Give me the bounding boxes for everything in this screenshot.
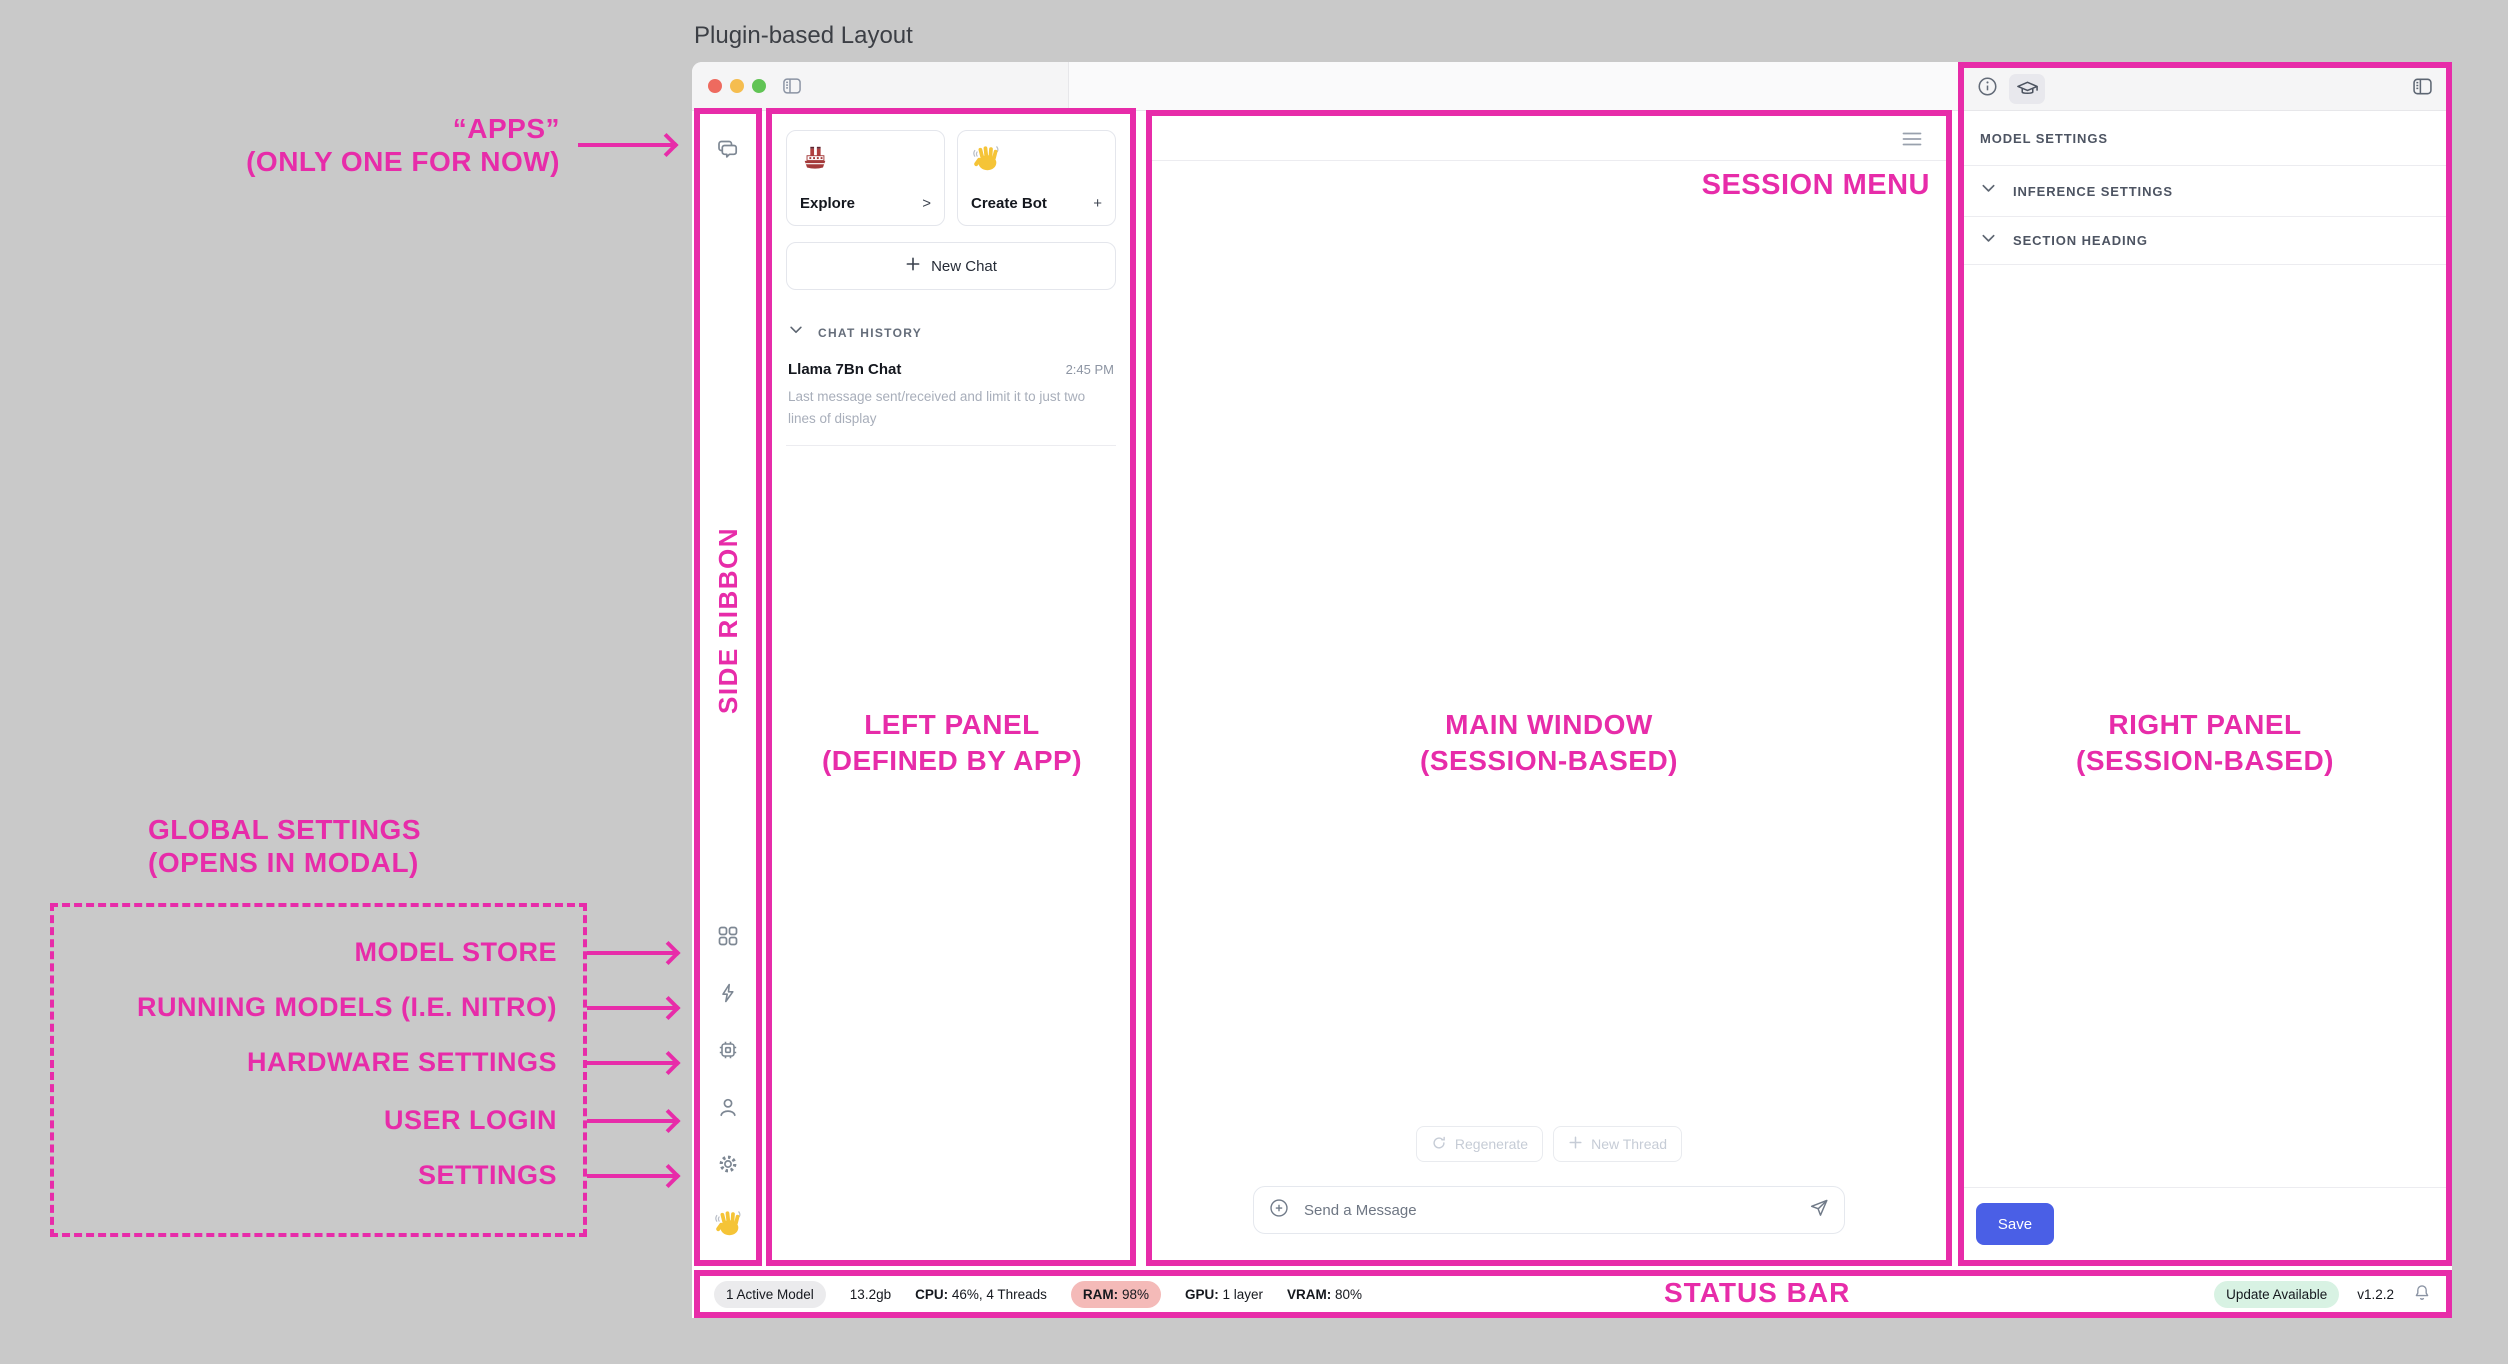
chip-icon[interactable] xyxy=(716,1038,740,1067)
message-composer[interactable] xyxy=(1253,1186,1845,1234)
memory-size: 13.2gb xyxy=(850,1287,891,1302)
gear-icon[interactable] xyxy=(716,1152,740,1181)
ship-emoji xyxy=(800,144,931,179)
annotation-arrow-settings xyxy=(587,1174,675,1178)
annotation-running-models: RUNNING MODELS (I.E. NITRO) xyxy=(60,992,557,1023)
annotation-right-panel: RIGHT PANEL (SESSION-BASED) xyxy=(1958,707,2452,779)
right-panel: MODEL SETTINGS INFERENCE SETTINGS SECTIO… xyxy=(1958,62,2452,1266)
annotation-apps: “APPS” (ONLY ONE FOR NOW) xyxy=(150,112,560,178)
chat-history-item[interactable]: Llama 7Bn Chat 2:45 PM Last message sent… xyxy=(786,361,1116,446)
design-canvas: Plugin-based Layout xyxy=(0,0,2508,1364)
annotation-arrow-apps xyxy=(578,143,673,147)
chat-time: 2:45 PM xyxy=(1066,362,1114,377)
gpu-stat: GPU: 1 layer xyxy=(1185,1287,1263,1302)
regenerate-button[interactable]: Regenerate xyxy=(1416,1126,1543,1162)
send-icon[interactable] xyxy=(1808,1197,1830,1224)
annotation-arrow-model-store xyxy=(587,951,675,955)
page-title: Plugin-based Layout xyxy=(694,22,913,50)
graduation-cap-icon[interactable] xyxy=(2009,74,2045,104)
wave-hand-emoji[interactable] xyxy=(713,1209,743,1244)
plus-icon xyxy=(1568,1135,1583,1153)
right-panel-header xyxy=(1964,68,2446,111)
plus-icon xyxy=(905,256,921,276)
section-heading-section[interactable]: SECTION HEADING xyxy=(1964,217,2446,265)
panel-toggle-icon[interactable] xyxy=(2411,75,2434,103)
chat-title: Llama 7Bn Chat xyxy=(788,361,901,378)
chat-history-label: CHAT HISTORY xyxy=(818,326,922,340)
new-thread-button[interactable]: New Thread xyxy=(1553,1126,1682,1162)
chat-history-header[interactable]: CHAT HISTORY xyxy=(786,322,1116,343)
annotation-arrow-running-models xyxy=(587,1006,675,1010)
status-bar: 1 Active Model 13.2gb CPU: 46%, 4 Thread… xyxy=(694,1270,2452,1318)
model-settings-heading: MODEL SETTINGS xyxy=(1964,111,2446,166)
new-chat-label: New Chat xyxy=(931,258,997,275)
zoom-button[interactable] xyxy=(752,79,766,93)
left-panel: Explore > xyxy=(766,108,1136,1266)
explore-card-chevron: > xyxy=(922,195,931,212)
ram-stat: RAM: 98% xyxy=(1071,1281,1161,1308)
bolt-icon[interactable] xyxy=(716,981,740,1010)
annotation-user-login: USER LOGIN xyxy=(60,1105,557,1136)
annotation-arrow-hardware-settings xyxy=(587,1061,675,1065)
main-window: Regenerate New Thread xyxy=(1146,110,1952,1266)
info-icon[interactable] xyxy=(1976,75,1999,103)
vram-stat: VRAM: 80% xyxy=(1287,1287,1362,1302)
app-version: v1.2.2 xyxy=(2357,1287,2394,1302)
explore-card[interactable]: Explore > xyxy=(786,130,945,226)
create-bot-card-label: Create Bot xyxy=(971,195,1047,212)
grid-apps-icon[interactable] xyxy=(716,924,740,953)
chevron-down-icon xyxy=(1980,230,1997,252)
update-available-badge[interactable]: Update Available xyxy=(2214,1281,2339,1308)
section-heading-label: SECTION HEADING xyxy=(2013,233,2148,248)
explore-card-label: Explore xyxy=(800,195,855,212)
refresh-icon xyxy=(1431,1135,1447,1154)
chat-bubbles-icon[interactable] xyxy=(715,136,741,167)
circle-plus-icon[interactable] xyxy=(1268,1197,1290,1224)
wave-hand-emoji xyxy=(971,144,1102,179)
regenerate-label: Regenerate xyxy=(1455,1136,1528,1152)
chevron-down-icon xyxy=(1980,180,1997,202)
model-settings-label: MODEL SETTINGS xyxy=(1980,131,2108,146)
user-icon[interactable] xyxy=(716,1095,740,1124)
create-bot-card-plus: + xyxy=(1093,195,1102,212)
annotation-side-ribbon: SIDE RIBBON xyxy=(694,515,762,725)
annotation-hardware-settings: HARDWARE SETTINGS xyxy=(60,1047,557,1078)
main-window-header xyxy=(1152,116,1946,161)
minimize-button[interactable] xyxy=(730,79,744,93)
annotation-global-settings: GLOBAL SETTINGS (OPENS IN MODAL) xyxy=(148,813,421,879)
annotation-settings: SETTINGS xyxy=(60,1160,557,1191)
bell-icon[interactable] xyxy=(2412,1283,2432,1306)
chevron-down-icon xyxy=(788,322,804,343)
create-bot-card[interactable]: Create Bot + xyxy=(957,130,1116,226)
save-button[interactable]: Save xyxy=(1976,1203,2054,1245)
annotation-session-menu: SESSION MENU xyxy=(1620,169,1930,202)
active-model-badge: 1 Active Model xyxy=(714,1281,826,1308)
inference-settings-label: INFERENCE SETTINGS xyxy=(2013,184,2173,199)
new-chat-button[interactable]: New Chat xyxy=(786,242,1116,290)
new-thread-label: New Thread xyxy=(1591,1136,1667,1152)
annotation-status-bar: STATUS BAR xyxy=(1664,1277,1850,1309)
message-input[interactable] xyxy=(1302,1201,1796,1220)
menu-icon[interactable] xyxy=(1900,127,1924,156)
right-panel-footer: Save xyxy=(1964,1187,2446,1260)
inference-settings-section[interactable]: INFERENCE SETTINGS xyxy=(1964,166,2446,217)
chat-preview: Last message sent/received and limit it … xyxy=(788,386,1114,429)
annotation-arrow-user-login xyxy=(587,1119,675,1123)
annotation-left-panel: LEFT PANEL (DEFINED BY APP) xyxy=(768,707,1136,779)
annotation-main-window: MAIN WINDOW (SESSION-BASED) xyxy=(1146,707,1952,779)
close-button[interactable] xyxy=(708,79,722,93)
sidebar-toggle-icon[interactable] xyxy=(780,75,804,102)
cpu-stat: CPU: 46%, 4 Threads xyxy=(915,1287,1047,1302)
annotation-model-store: MODEL STORE xyxy=(60,937,557,968)
